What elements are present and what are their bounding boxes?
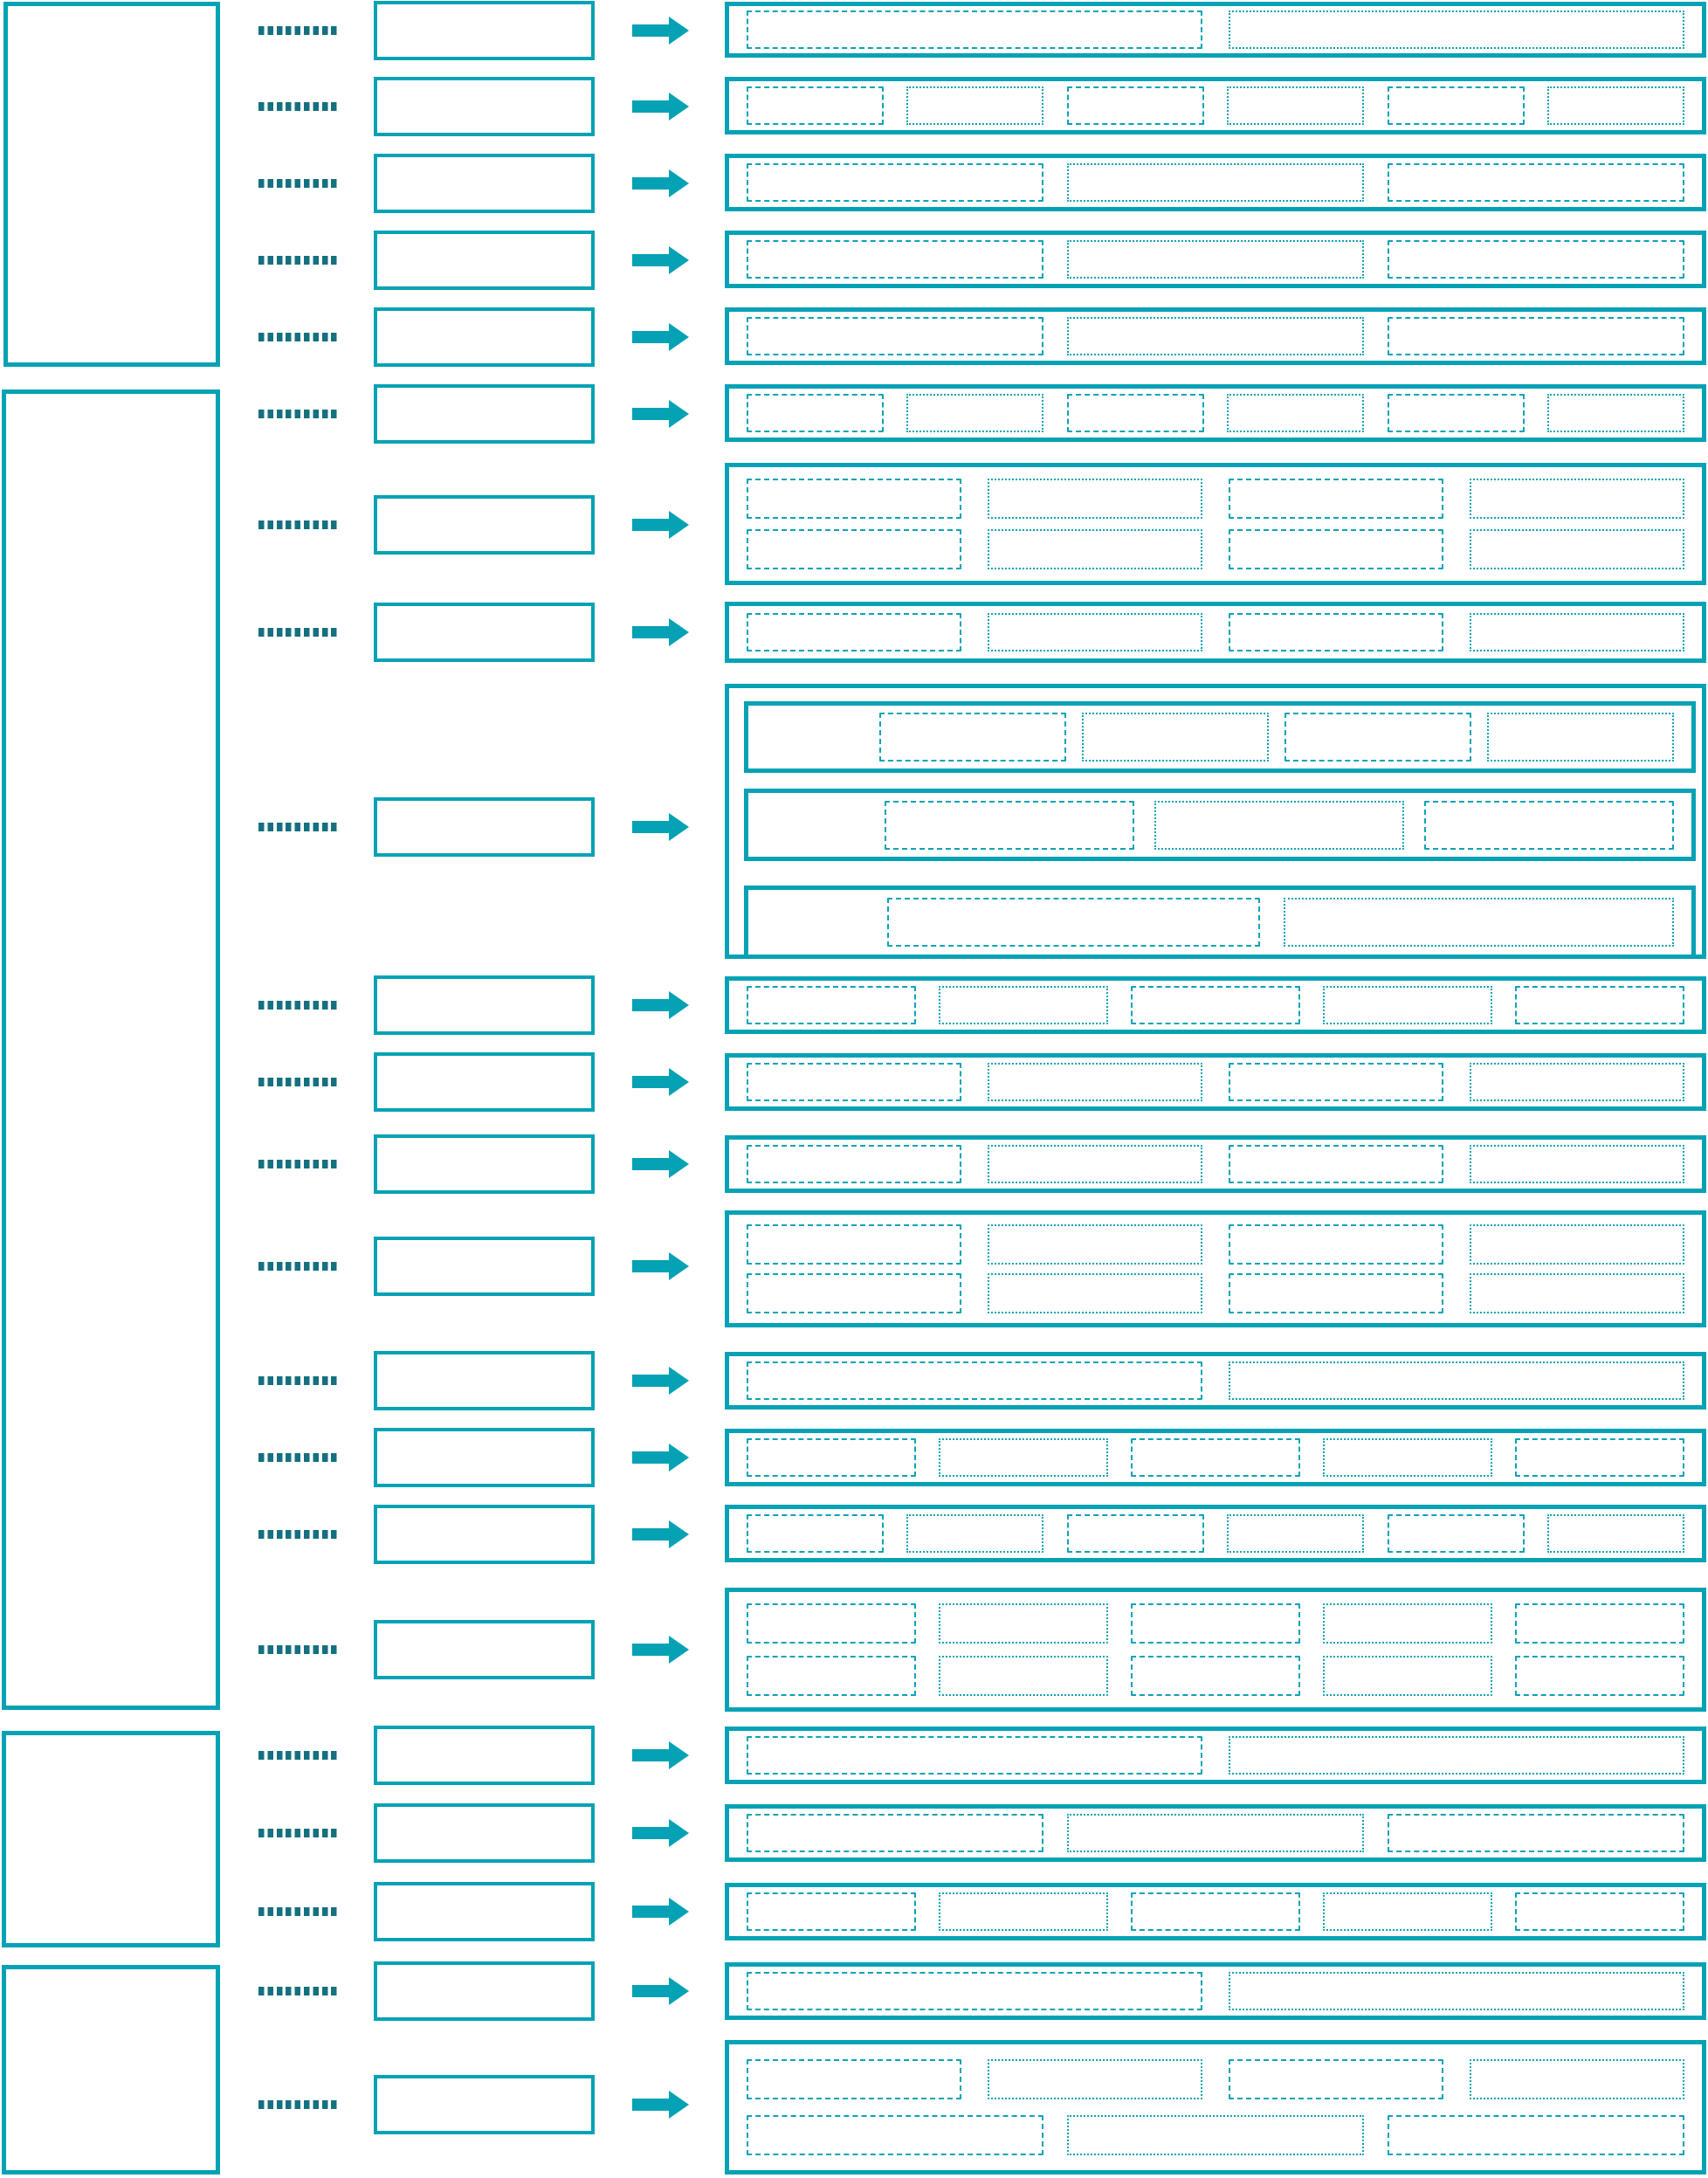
dash-connector [258, 410, 339, 418]
placeholder-cell [747, 10, 1202, 49]
cell-row [729, 1224, 1702, 1265]
source-box [374, 1961, 595, 2021]
cell-row [729, 1361, 1702, 1400]
placeholder-cell [1131, 1656, 1300, 1696]
placeholder-cell [747, 1656, 916, 1696]
source-box [374, 1052, 595, 1112]
flow-arrow-icon [632, 990, 690, 1020]
placeholder-cell [1388, 1514, 1525, 1553]
placeholder-cell [1229, 10, 1684, 49]
placeholder-cell [1388, 163, 1684, 202]
placeholder-cell [988, 529, 1202, 569]
source-box [374, 603, 595, 662]
cell-row [729, 986, 1702, 1024]
cell-row [729, 317, 1702, 355]
placeholder-cell [906, 86, 1043, 125]
placeholder-cell [1229, 1273, 1443, 1313]
placeholder-cell [747, 1514, 884, 1553]
placeholder-cell [988, 1224, 1202, 1265]
cell-row [729, 1656, 1702, 1696]
target-container [725, 602, 1706, 663]
placeholder-cell [1323, 1603, 1492, 1644]
placeholder-cell [1067, 2115, 1364, 2155]
nested-subcontainer-3 [744, 886, 1696, 959]
dash-connector [258, 1001, 339, 1010]
placeholder-cell [939, 986, 1108, 1024]
cell-row [729, 1892, 1702, 1931]
placeholder-cell [1131, 986, 1300, 1024]
placeholder-cell [747, 1814, 1043, 1852]
placeholder-cell [1131, 1892, 1300, 1931]
placeholder-cell [1515, 1656, 1684, 1696]
cell-row [729, 1273, 1702, 1313]
source-box [374, 1803, 595, 1863]
cell-row [729, 10, 1702, 49]
placeholder-cell [1067, 1814, 1364, 1852]
placeholder-cell [1547, 1514, 1684, 1553]
placeholder-cell [1470, 2059, 1684, 2099]
placeholder-cell [747, 1892, 916, 1931]
placeholder-cell [1284, 713, 1471, 762]
source-box [374, 231, 595, 290]
placeholder-cell [1547, 394, 1684, 432]
flow-arrow-icon [632, 1897, 690, 1926]
placeholder-cell [1515, 1438, 1684, 1477]
dash-connector [258, 1160, 339, 1168]
placeholder-cell [1470, 1273, 1684, 1313]
placeholder-cell [906, 1514, 1043, 1553]
placeholder-cell [988, 2059, 1202, 2099]
flow-arrow-icon [632, 169, 690, 198]
flow-arrow-icon [632, 1740, 690, 1770]
indent-spacer [766, 737, 864, 738]
target-container [725, 1135, 1706, 1193]
placeholder-cell [988, 1273, 1202, 1313]
target-container [725, 307, 1706, 365]
placeholder-cell [1388, 317, 1684, 355]
cell-row [729, 1736, 1702, 1775]
placeholder-cell [988, 1063, 1202, 1101]
flow-arrow-icon [632, 1149, 690, 1179]
placeholder-cell [747, 2115, 1043, 2155]
flow-arrow-icon [632, 617, 690, 647]
placeholder-cell [1229, 1145, 1443, 1183]
cell-row [729, 86, 1702, 125]
flow-arrow-icon [632, 2090, 690, 2119]
dash-connector [258, 628, 339, 637]
cell-row [729, 1814, 1702, 1852]
cell-row [729, 1438, 1702, 1477]
dash-connector [258, 1262, 339, 1271]
placeholder-cell [1470, 529, 1684, 569]
placeholder-cell [1229, 1361, 1684, 1400]
dash-connector [258, 1829, 339, 1837]
flow-arrow-icon [632, 1366, 690, 1396]
target-container [725, 1053, 1706, 1111]
flow-arrow-icon [632, 1635, 690, 1665]
placeholder-cell [1227, 1514, 1364, 1553]
source-box [374, 384, 595, 444]
placeholder-cell [1227, 394, 1364, 432]
left-panel-2 [2, 389, 220, 1710]
placeholder-cell [1470, 479, 1684, 519]
nested-subcontainer-1 [744, 701, 1696, 773]
placeholder-cell [747, 240, 1043, 279]
placeholder-cell [1470, 613, 1684, 651]
placeholder-cell [1067, 163, 1364, 202]
placeholder-cell [1229, 613, 1443, 651]
target-container [725, 1962, 1706, 2020]
placeholder-cell [747, 1273, 961, 1313]
placeholder-cell [939, 1892, 1108, 1931]
placeholder-cell [1067, 394, 1204, 432]
source-box [374, 1237, 595, 1296]
placeholder-cell [747, 2059, 961, 2099]
dash-connector [258, 1987, 339, 1995]
target-container [725, 1210, 1706, 1327]
target-container [725, 384, 1706, 442]
dash-connector [258, 102, 339, 111]
flow-arrow-icon [632, 812, 690, 842]
source-box [374, 1505, 595, 1564]
placeholder-cell [1229, 1063, 1443, 1101]
target-container [725, 1883, 1706, 1940]
placeholder-cell [1284, 898, 1674, 947]
flow-arrow-icon [632, 399, 690, 429]
cell-row [729, 240, 1702, 279]
source-box [374, 1428, 595, 1487]
target-container [725, 1352, 1706, 1409]
placeholder-cell [1487, 713, 1674, 762]
placeholder-cell [939, 1603, 1108, 1644]
placeholder-cell [1229, 2059, 1443, 2099]
placeholder-cell [1323, 1656, 1492, 1696]
source-box [374, 1351, 595, 1410]
placeholder-cell [1515, 986, 1684, 1024]
dash-connector [258, 1530, 339, 1539]
target-container [725, 231, 1706, 288]
flow-arrow-icon [632, 1251, 690, 1281]
placeholder-cell [747, 1438, 916, 1477]
placeholder-cell [1067, 240, 1364, 279]
placeholder-cell [1388, 2115, 1684, 2155]
placeholder-cell [988, 1145, 1202, 1183]
flow-arrow-icon [632, 92, 690, 121]
indent-spacer [766, 922, 864, 923]
source-box [374, 797, 595, 857]
source-box [374, 1134, 595, 1194]
placeholder-cell [887, 898, 1259, 947]
cell-row [729, 163, 1702, 202]
cell-row [729, 1063, 1702, 1101]
placeholder-cell [747, 529, 961, 569]
placeholder-cell [747, 986, 916, 1024]
cell-row [729, 1603, 1702, 1644]
target-container [725, 154, 1706, 211]
cell-row [729, 613, 1702, 651]
placeholder-cell [747, 479, 961, 519]
placeholder-cell [1229, 479, 1443, 519]
flow-arrow-icon [632, 16, 690, 45]
placeholder-cell [747, 394, 884, 432]
placeholder-cell [1131, 1603, 1300, 1644]
target-container [725, 1505, 1706, 1562]
placeholder-cell [747, 1972, 1202, 2010]
placeholder-cell [1323, 1438, 1492, 1477]
source-box [374, 975, 595, 1035]
placeholder-cell [1227, 86, 1364, 125]
placeholder-cell [988, 479, 1202, 519]
dash-connector [258, 1078, 339, 1086]
placeholder-cell [1323, 986, 1492, 1024]
placeholder-cell [747, 163, 1043, 202]
placeholder-cell [1229, 1224, 1443, 1265]
flow-arrow-icon [632, 245, 690, 275]
dash-connector [258, 2100, 339, 2109]
placeholder-cell [1470, 1145, 1684, 1183]
placeholder-cell [1131, 1438, 1300, 1477]
cell-row [729, 394, 1702, 432]
placeholder-cell [1470, 1224, 1684, 1265]
nested-group-container [725, 684, 1706, 959]
placeholder-cell [1388, 394, 1525, 432]
target-container [725, 1588, 1706, 1712]
flow-arrow-icon [632, 322, 690, 352]
placeholder-cell [1470, 1063, 1684, 1101]
placeholder-cell [906, 394, 1043, 432]
source-box [374, 307, 595, 367]
placeholder-cell [939, 1438, 1108, 1477]
dash-connector [258, 1376, 339, 1385]
dash-connector [258, 1645, 339, 1654]
target-container [725, 2, 1706, 58]
source-box [374, 1882, 595, 1941]
placeholder-cell [1388, 1814, 1684, 1852]
placeholder-cell [1229, 529, 1443, 569]
flow-arrow-icon [632, 510, 690, 540]
placeholder-cell [1323, 1892, 1492, 1931]
flow-arrow-icon [632, 1818, 690, 1848]
source-box [374, 154, 595, 213]
placeholder-cell [885, 801, 1134, 850]
placeholder-cell [1154, 801, 1404, 850]
source-box [374, 1726, 595, 1785]
placeholder-cell [1229, 1736, 1684, 1775]
placeholder-cell [988, 613, 1202, 651]
placeholder-cell [1229, 1972, 1684, 2010]
placeholder-cell [879, 713, 1066, 762]
source-box [374, 495, 595, 555]
left-panel-3 [2, 1731, 220, 1947]
placeholder-cell [747, 317, 1043, 355]
cell-row [729, 1514, 1702, 1553]
indent-spacer [766, 824, 864, 825]
placeholder-cell [1067, 86, 1204, 125]
dash-connector [258, 333, 339, 341]
target-container [725, 77, 1706, 134]
flow-arrow-icon [632, 1976, 690, 2006]
cell-row [729, 479, 1702, 519]
target-container [725, 976, 1706, 1034]
placeholder-cell [1082, 713, 1269, 762]
placeholder-cell [1515, 1892, 1684, 1931]
placeholder-cell [1547, 86, 1684, 125]
placeholder-cell [747, 1736, 1202, 1775]
dash-connector [258, 256, 339, 265]
source-box [374, 1, 595, 60]
target-container [725, 463, 1706, 585]
dash-connector [258, 1751, 339, 1760]
target-container [725, 1429, 1706, 1486]
placeholder-cell [939, 1656, 1108, 1696]
placeholder-cell [747, 613, 961, 651]
placeholder-cell [1424, 801, 1674, 850]
dash-connector [258, 26, 339, 35]
placeholder-cell [747, 1145, 961, 1183]
placeholder-cell [747, 1224, 961, 1265]
placeholder-cell [1388, 86, 1525, 125]
placeholder-cell [1515, 1603, 1684, 1644]
placeholder-cell [747, 1063, 961, 1101]
placeholder-cell [1067, 317, 1364, 355]
flow-arrow-icon [632, 1520, 690, 1549]
cell-row [729, 2059, 1702, 2099]
placeholder-cell [747, 86, 884, 125]
dash-connector [258, 1907, 339, 1916]
placeholder-cell [747, 1361, 1202, 1400]
target-container [725, 2040, 1706, 2175]
source-box [374, 1620, 595, 1679]
left-panel-1 [3, 2, 220, 367]
flow-arrow-icon [632, 1443, 690, 1472]
cell-row [729, 1972, 1702, 2010]
dash-connector [258, 520, 339, 529]
cell-row [729, 529, 1702, 569]
dash-connector [258, 823, 339, 831]
cell-row [729, 1145, 1702, 1183]
dash-connector [258, 179, 339, 188]
target-container [725, 1804, 1706, 1862]
cell-row [729, 2115, 1702, 2155]
source-box [374, 77, 595, 136]
left-panel-4 [2, 1965, 220, 2175]
placeholder-cell [1388, 240, 1684, 279]
flow-arrow-icon [632, 1067, 690, 1097]
placeholder-cell [747, 1603, 916, 1644]
source-box [374, 2075, 595, 2134]
placeholder-cell [1067, 1514, 1204, 1553]
dash-connector [258, 1453, 339, 1462]
nested-subcontainer-2 [744, 789, 1696, 861]
wireframe-diagram [0, 0, 1708, 2178]
target-container [725, 1727, 1706, 1784]
